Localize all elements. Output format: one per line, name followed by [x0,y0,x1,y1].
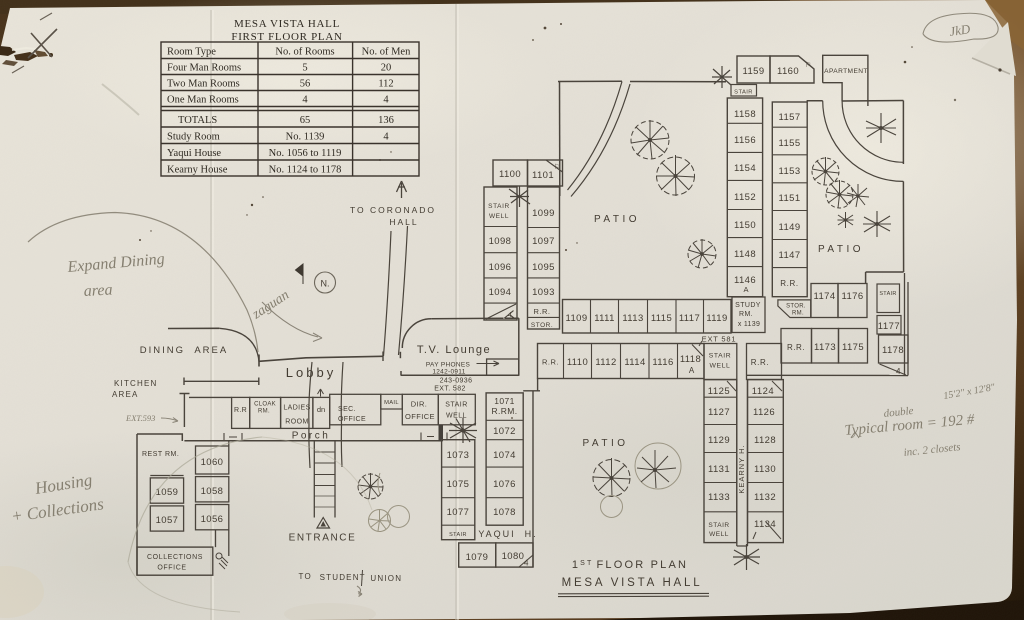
svg-text:TOTALS: TOTALS [178,115,217,126]
svg-text:EXT. 582: EXT. 582 [434,386,466,393]
svg-text:PATIO: PATIO [582,438,628,449]
svg-text:243-0936: 243-0936 [440,378,473,385]
svg-text:1111: 1111 [594,313,615,324]
svg-text:TO: TO [299,572,312,581]
svg-text:KITCHEN: KITCHEN [114,379,158,388]
svg-text:A: A [689,366,695,375]
svg-text:ENTRANCE: ENTRANCE [289,533,357,544]
svg-text:1155: 1155 [778,138,800,149]
svg-text:1117: 1117 [679,313,700,324]
svg-text:STAIR: STAIR [449,532,467,538]
svg-text:1101: 1101 [532,170,554,181]
svg-text:1125: 1125 [708,386,730,397]
svg-text:1114: 1114 [624,357,645,368]
svg-text:N.: N. [321,279,330,289]
svg-text:1177: 1177 [878,321,900,332]
svg-text:1060: 1060 [201,457,224,468]
svg-text:1173: 1173 [814,342,836,353]
svg-text:COLLECTIONS: COLLECTIONS [147,554,203,561]
svg-text:1093: 1093 [532,287,555,298]
svg-text:⚐: ⚐ [805,61,811,69]
svg-text:HALL: HALL [389,217,418,227]
svg-text:1058: 1058 [201,486,224,497]
svg-text:112: 112 [378,79,393,90]
svg-text:56: 56 [300,79,311,90]
svg-text:area: area [83,282,113,300]
svg-text:1116: 1116 [652,357,673,368]
svg-text:1157: 1157 [778,112,800,123]
svg-text:R.R.: R.R. [542,358,559,367]
svg-text:1115: 1115 [651,313,672,324]
svg-text:1178: 1178 [882,345,904,356]
svg-text:1148: 1148 [734,249,756,260]
svg-text:1074: 1074 [493,450,516,461]
svg-text:AREA: AREA [112,390,139,399]
svg-text:1134: 1134 [754,519,776,530]
svg-text:4: 4 [896,367,901,376]
svg-text:PATIO: PATIO [818,244,864,255]
svg-text:OFFICE: OFFICE [405,412,435,421]
svg-text:DIR.: DIR. [411,400,428,409]
svg-text:1078: 1078 [493,507,516,518]
svg-text:1153: 1153 [778,166,800,177]
svg-text:1109: 1109 [565,313,587,324]
svg-text:4: 4 [302,95,308,106]
svg-text:1096: 1096 [489,262,512,273]
svg-text:1119: 1119 [706,313,727,324]
svg-text:1156: 1156 [734,135,756,146]
svg-text:1100: 1100 [499,169,521,180]
svg-text:20: 20 [381,63,392,74]
svg-text:MESA VISTA HALL: MESA VISTA HALL [562,577,703,589]
svg-text:1174: 1174 [813,291,835,302]
svg-text:No. 1124 to 1178: No. 1124 to 1178 [269,165,342,176]
svg-text:RM.: RM. [739,311,753,318]
svg-text:1159: 1159 [742,66,764,77]
svg-text:1112: 1112 [595,357,616,368]
svg-text:1158: 1158 [734,109,756,120]
svg-text:1160: 1160 [777,66,799,77]
svg-text:Yaqui House: Yaqui House [167,148,221,159]
svg-text:1127: 1127 [708,407,730,418]
svg-text:1094: 1094 [489,287,512,298]
svg-text:Room Type: Room Type [167,47,216,58]
svg-text:1095: 1095 [532,262,555,273]
svg-text:1154: 1154 [734,163,756,174]
svg-text:MAIL: MAIL [384,400,399,406]
svg-text:MESA VISTA HALL: MESA VISTA HALL [234,18,340,30]
svg-text:R.R.: R.R. [751,358,769,367]
svg-text:1113: 1113 [622,313,643,324]
svg-text:1128: 1128 [754,435,776,446]
svg-text:1175: 1175 [842,342,864,353]
svg-text:WELL: WELL [489,213,509,220]
svg-text:UNION: UNION [370,574,402,583]
svg-text:R.R.: R.R. [787,343,805,352]
svg-text:1124: 1124 [752,386,774,397]
svg-text:REST RM.: REST RM. [142,451,179,458]
svg-text:1118: 1118 [680,354,701,365]
svg-text:TO CORONADO: TO CORONADO [350,205,436,215]
svg-text:R.R.: R.R. [780,279,798,288]
svg-text:STAIR: STAIR [879,291,896,297]
svg-text:4: 4 [524,559,529,568]
svg-text:DINING AREA: DINING AREA [140,345,228,356]
svg-text:FIRST FLOOR PLAN: FIRST FLOOR PLAN [231,31,342,43]
svg-text:1073: 1073 [447,450,470,461]
svg-text:1097: 1097 [532,236,555,247]
svg-text:1132: 1132 [754,492,776,503]
svg-text:x 1139: x 1139 [738,321,760,328]
svg-text:STAIR: STAIR [488,203,510,210]
svg-text:Porch: Porch [292,431,331,442]
svg-text:STAIR: STAIR [445,402,468,409]
svg-text:PATIO: PATIO [594,214,640,225]
svg-text:1080: 1080 [502,551,525,562]
svg-text:STAIR: STAIR [709,353,732,360]
svg-text:136: 136 [378,115,394,126]
svg-text:1176: 1176 [841,291,863,302]
svg-text:1126: 1126 [753,407,775,418]
svg-text:WELL: WELL [709,531,729,538]
svg-text:R.R.: R.R. [534,307,551,316]
svg-text:JkD: JkD [948,21,971,39]
svg-text:Kearny House: Kearny House [167,165,228,176]
svg-text:YAQUI H.: YAQUI H. [478,529,537,539]
svg-text:PAY PHONES: PAY PHONES [426,362,471,369]
svg-text:OFFICE: OFFICE [157,565,186,572]
svg-text:65: 65 [300,115,311,126]
svg-text:One Man Rooms: One Man Rooms [167,95,239,106]
svg-text:1077: 1077 [447,507,470,518]
svg-text:1056: 1056 [201,514,224,525]
svg-text:No. of Rooms: No. of Rooms [275,47,334,58]
svg-text:1129: 1129 [708,435,730,446]
svg-text:1242-0911: 1242-0911 [432,369,465,376]
svg-text:1076: 1076 [493,479,516,490]
svg-text:A: A [743,285,748,294]
svg-text:ROOM: ROOM [285,419,308,426]
svg-text:OFFICE: OFFICE [338,416,366,423]
svg-text:CLOAK: CLOAK [254,402,276,408]
svg-text:1079: 1079 [466,552,489,563]
svg-text:No. of Men: No. of Men [362,47,411,58]
svg-text:STOR.: STOR. [786,304,806,310]
svg-text:KEARNY H.: KEARNY H. [737,444,746,493]
svg-text:1130: 1130 [754,464,776,475]
svg-text:1133: 1133 [708,492,730,503]
svg-text:T.V. Lounge: T.V. Lounge [417,344,491,356]
svg-text:5: 5 [302,63,307,74]
svg-text:1110: 1110 [567,357,588,368]
svg-text:1149: 1149 [778,222,800,233]
svg-text:1072: 1072 [493,426,516,437]
svg-text:1152: 1152 [734,192,756,203]
svg-text:1151: 1151 [778,193,800,204]
svg-text:RM.: RM. [258,409,270,415]
svg-text:STUDENT: STUDENT [320,573,366,582]
svg-text:Four Man Rooms: Four Man Rooms [167,63,241,74]
svg-text:1057: 1057 [156,515,179,526]
svg-text:EXT 581: EXT 581 [702,335,737,344]
svg-text:1131: 1131 [708,464,730,475]
svg-text:1075: 1075 [447,479,470,490]
svg-text:1098: 1098 [489,236,512,247]
svg-text:Study Room: Study Room [167,132,220,143]
svg-text:4: 4 [383,95,389,106]
svg-text:STAIR: STAIR [734,90,753,96]
svg-text:EXT.593: EXT.593 [125,413,155,423]
svg-text:1147: 1147 [778,250,800,261]
svg-text:APARTMENT: APARTMENT [824,68,868,75]
svg-text:STUDY: STUDY [735,302,761,309]
svg-text:dn: dn [317,405,325,414]
svg-text:Two Man Rooms: Two Man Rooms [167,79,240,90]
svg-text:No. 1139: No. 1139 [286,132,325,143]
svg-text:R.RM.: R.RM. [491,406,517,416]
svg-text:RM.: RM. [792,311,804,317]
svg-text:STOR.: STOR. [531,322,553,329]
svg-text:LADIES: LADIES [283,405,310,412]
svg-text:R.R: R.R [234,407,247,414]
svg-text:1071: 1071 [494,396,515,406]
svg-text:WELL: WELL [710,363,731,370]
svg-text:1150: 1150 [734,220,756,231]
svg-text:1099: 1099 [532,208,555,219]
svg-text:STAIR: STAIR [708,522,729,529]
svg-text:4: 4 [383,132,389,143]
svg-text:No. 1056 to 1119: No. 1056 to 1119 [269,148,342,159]
